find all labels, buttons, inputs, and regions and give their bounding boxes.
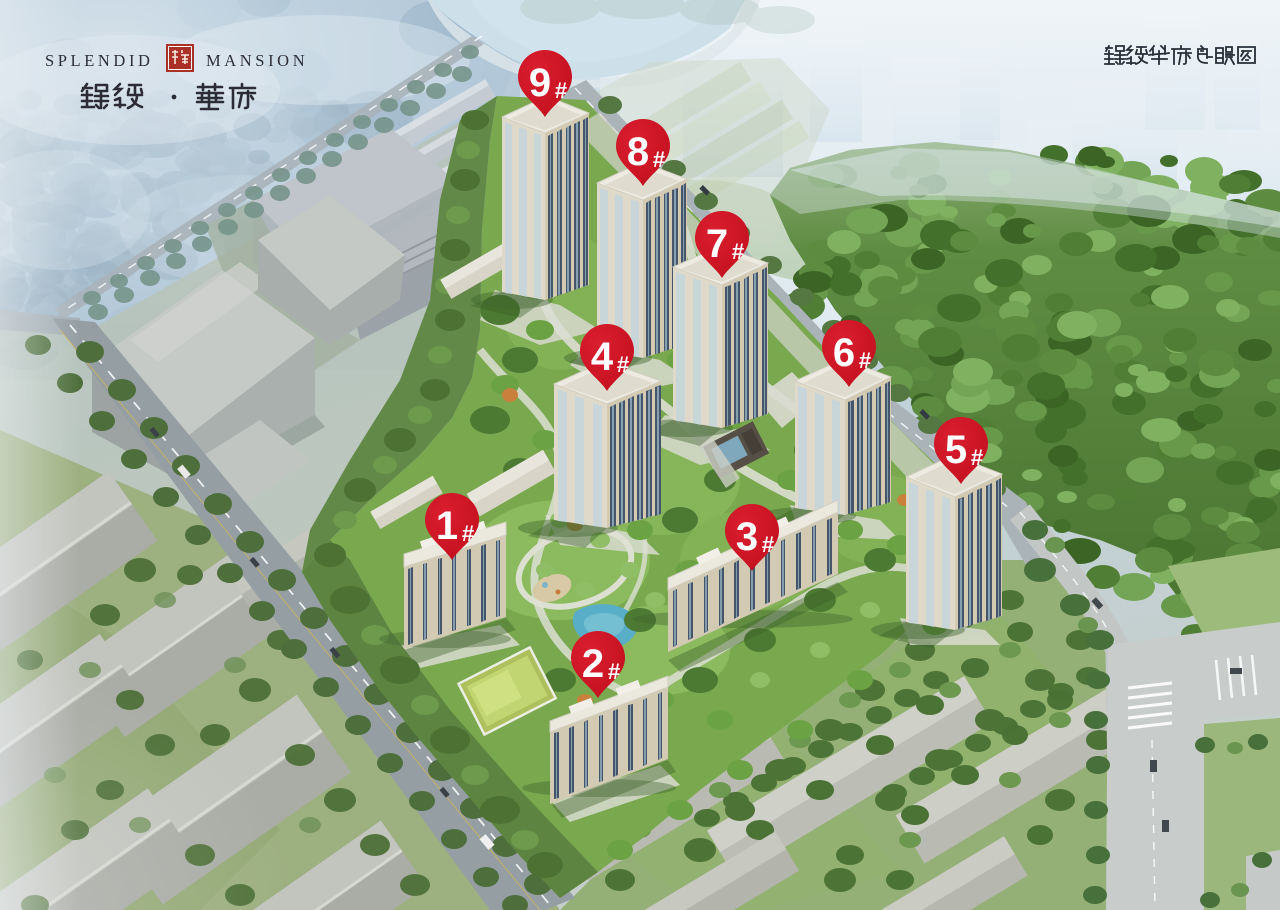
svg-text:2: 2 — [582, 642, 604, 686]
svg-text:#: # — [617, 352, 629, 377]
svg-text:6: 6 — [833, 331, 855, 375]
svg-text:#: # — [555, 78, 567, 103]
svg-text:#: # — [762, 532, 774, 557]
svg-text:8: 8 — [627, 130, 649, 174]
svg-text:9: 9 — [529, 61, 551, 105]
svg-text:#: # — [608, 659, 620, 684]
svg-text:7: 7 — [706, 222, 728, 266]
svg-text:SPLENDID: SPLENDID — [45, 51, 154, 70]
svg-text:#: # — [462, 521, 474, 546]
svg-text:#: # — [653, 147, 665, 172]
svg-text:3: 3 — [736, 515, 758, 559]
svg-text:#: # — [732, 239, 744, 264]
svg-text:4: 4 — [591, 335, 614, 379]
svg-text:5: 5 — [945, 428, 967, 472]
svg-text:1: 1 — [436, 504, 458, 548]
svg-text:MANSION: MANSION — [206, 51, 308, 70]
svg-text:#: # — [971, 445, 983, 470]
svg-text:#: # — [859, 348, 871, 373]
